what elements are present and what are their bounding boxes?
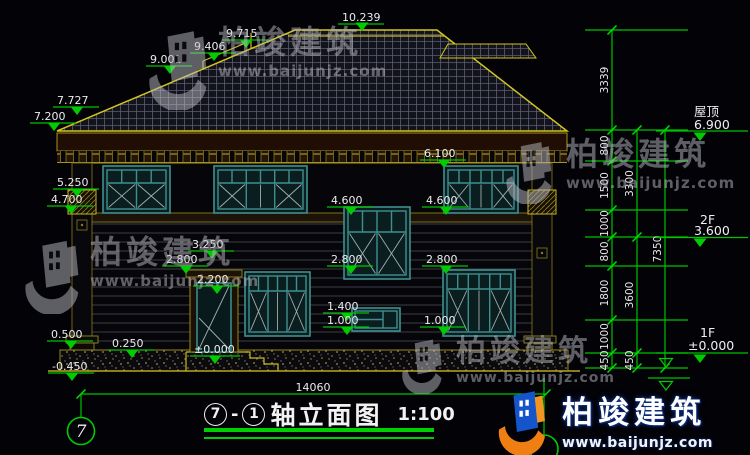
elevation-value: 4.600 (426, 194, 458, 207)
window-2f-left (103, 166, 170, 213)
watermark-brand: 柏竣建筑 (90, 236, 259, 270)
elevation-value: 6.100 (424, 147, 456, 160)
watermark-url: www.baijunjz.com (566, 174, 735, 192)
elevation-value: 7.727 (57, 94, 89, 107)
roof-level-value: 6.900 (694, 117, 730, 132)
watermark-brand: 柏竣建筑 (566, 138, 735, 172)
window-2f-center (214, 166, 307, 213)
elevation-value: 5.250 (57, 176, 89, 189)
eave-cornice (57, 133, 567, 163)
watermark-top: 柏竣建筑 www.baijunjz.com (146, 26, 387, 110)
axis-start-number: 7 (211, 406, 221, 422)
title-underline-thin (204, 437, 434, 439)
watermark-brand: 柏竣建筑 (218, 26, 387, 60)
dim-value: 800 (599, 241, 611, 261)
f1-level-value: ±0.000 (688, 338, 734, 353)
cad-elevation-screen: 10.239 9.715 9.406 9.001 7.727 7.200 (0, 0, 750, 455)
watermark-brand: 柏竣建筑 (456, 336, 615, 368)
watermark-left: 柏竣建筑 www.baijunjz.com (22, 236, 259, 314)
elevation-value: 1.000 (424, 314, 456, 327)
watermark-url: www.baijunjz.com (218, 62, 387, 80)
brand-logo-icon (500, 138, 558, 204)
dim-value: 450 (624, 350, 636, 370)
drawing-title-text: 轴立面图 (270, 396, 382, 432)
title-underline (204, 428, 434, 432)
elevation-value: 4.700 (51, 193, 83, 206)
elevation-value: 4.600 (331, 194, 363, 207)
dim-value: 3339 (599, 67, 611, 94)
watermark-url: www.baijunjz.com (90, 272, 259, 290)
overall-width-dim: 14060 (296, 381, 331, 394)
brand-logo-icon (22, 236, 82, 314)
watermark-right: 柏竣建筑 www.baijunjz.com (500, 138, 735, 204)
elevation-value: 1.400 (327, 300, 359, 313)
elevation-value: -0.450 (52, 360, 87, 373)
roof-secondary-ridge (440, 44, 536, 58)
axis-circle-end: 1 (242, 403, 265, 426)
fascia-board (57, 133, 567, 151)
axis-separator: - (231, 404, 238, 425)
brand-footer: 柏竣建筑 www.baijunjz.com (490, 387, 713, 455)
watermark-url: www.baijunjz.com (456, 370, 615, 386)
elevation-value: 2.800 (426, 253, 458, 266)
watermark-bottom: 柏竣建筑 www.baijunjz.com (396, 336, 615, 394)
dim-value: 1000 (599, 210, 611, 237)
brand-name: 柏竣建筑 (562, 387, 713, 432)
drawing-title: 7 - 1 轴立面图 1:100 (204, 396, 455, 432)
dim-value: 1800 (599, 280, 611, 307)
elevation-value: 0.500 (51, 328, 83, 341)
floor-band (82, 213, 546, 222)
dim-value: 7350 (652, 236, 664, 263)
brand-logo-icon (146, 26, 210, 110)
axis-bubble-left: 7 (68, 394, 95, 445)
dim-value: 3600 (624, 282, 636, 309)
elevation-value: ±0.000 (194, 343, 235, 356)
brand-logo-icon (396, 336, 448, 394)
axis-end-number: 1 (249, 406, 259, 422)
elevation-value: 0.250 (112, 337, 144, 350)
elevation-marker-neg0450: -0.450 (48, 360, 94, 381)
brand-logo-icon (490, 387, 554, 455)
elevation-value: 7.200 (34, 110, 66, 123)
dentil-strip (57, 151, 567, 162)
f2-level-value: 3.600 (694, 223, 730, 238)
elevation-value: 2.800 (331, 253, 363, 266)
brand-url: www.baijunjz.com (562, 435, 713, 451)
elevation-value: 1.000 (327, 314, 359, 327)
drawing-scale: 1:100 (398, 404, 455, 425)
axis-circle-start: 7 (204, 403, 227, 426)
axis-number: 7 (76, 422, 87, 442)
